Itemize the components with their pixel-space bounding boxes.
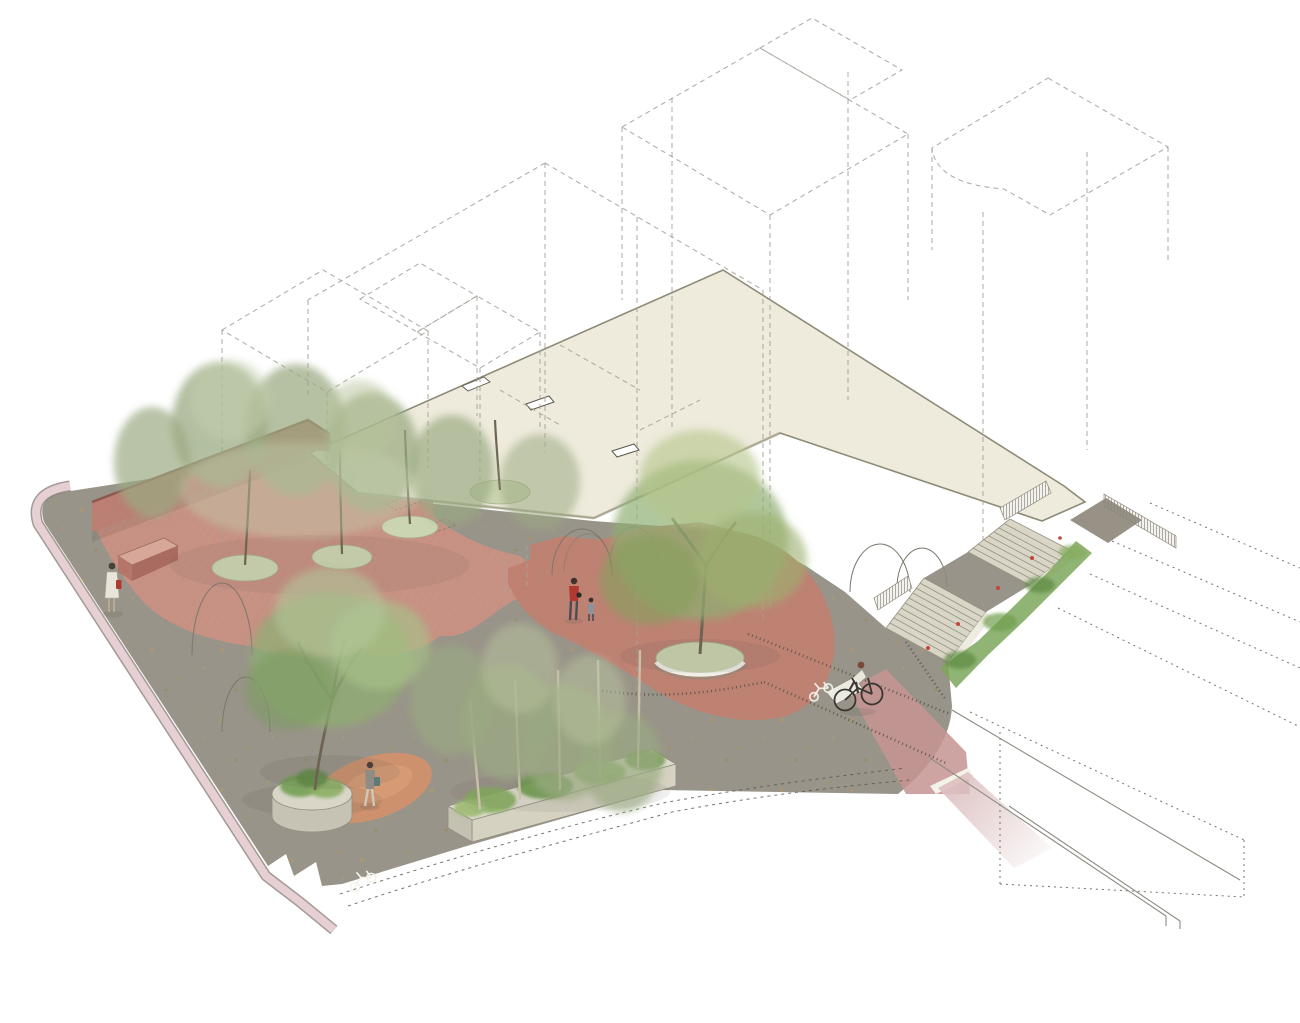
child-head bbox=[589, 598, 594, 603]
teal-bag bbox=[374, 777, 380, 786]
child-body bbox=[588, 604, 594, 614]
figure-head bbox=[367, 762, 373, 768]
figure-torso bbox=[365, 770, 375, 789]
figure-head bbox=[571, 578, 577, 584]
figure-head bbox=[109, 563, 116, 570]
upper-terrace bbox=[1070, 498, 1142, 543]
scene-svg bbox=[0, 0, 1300, 1023]
red-bag bbox=[116, 580, 122, 589]
cyclist-head bbox=[858, 662, 865, 669]
figure-shadow bbox=[360, 804, 380, 811]
ramp-edge bbox=[952, 710, 1240, 880]
ramp-dotted-outline bbox=[970, 712, 1244, 897]
site-illustration bbox=[0, 0, 1300, 1023]
bike-lane-pink-ramp bbox=[938, 772, 1052, 868]
dotted-road-edges bbox=[1058, 503, 1300, 727]
figure-shadow bbox=[840, 708, 876, 716]
figure-shadow bbox=[565, 618, 583, 624]
crossbody-bag bbox=[576, 592, 581, 597]
